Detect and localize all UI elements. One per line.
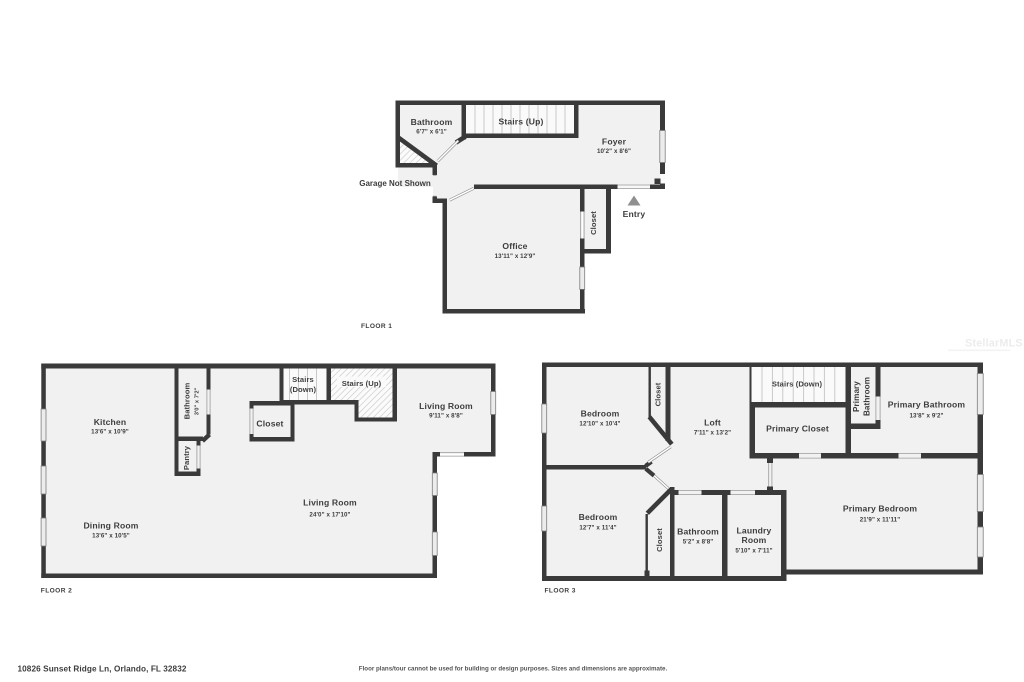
svg-text:Stairs: Stairs bbox=[292, 375, 314, 384]
svg-text:Bedroom: Bedroom bbox=[579, 512, 618, 522]
svg-text:Office: Office bbox=[502, 241, 527, 251]
svg-text:24'0" x 17'10": 24'0" x 17'10" bbox=[309, 512, 350, 519]
svg-text:12'7" x 11'4": 12'7" x 11'4" bbox=[579, 524, 616, 531]
svg-text:Closet: Closet bbox=[655, 528, 664, 552]
svg-text:5'10" x 7'11": 5'10" x 7'11" bbox=[735, 547, 772, 554]
svg-text:Stairs (Down): Stairs (Down) bbox=[772, 379, 823, 388]
svg-text:FLOOR 2: FLOOR 2 bbox=[41, 588, 72, 595]
svg-text:Bedroom: Bedroom bbox=[581, 408, 620, 418]
svg-text:13'6" x 10'5": 13'6" x 10'5" bbox=[92, 533, 130, 540]
svg-text:3'0" x 7'2": 3'0" x 7'2" bbox=[194, 387, 200, 415]
svg-text:Stairs (Up): Stairs (Up) bbox=[498, 116, 543, 126]
svg-text:Closet: Closet bbox=[653, 382, 662, 406]
svg-text:21'9" x 11'11": 21'9" x 11'11" bbox=[860, 517, 901, 524]
svg-text:(Down): (Down) bbox=[290, 385, 317, 394]
svg-text:Primary: Primary bbox=[852, 381, 861, 412]
svg-text:12'10" x 10'4": 12'10" x 10'4" bbox=[579, 420, 620, 427]
svg-text:Living Room: Living Room bbox=[419, 401, 473, 411]
svg-text:Bathroom: Bathroom bbox=[862, 377, 871, 416]
svg-text:Room: Room bbox=[742, 535, 767, 545]
svg-text:Dining Room: Dining Room bbox=[83, 520, 138, 530]
svg-text:13'11" x 12'9": 13'11" x 12'9" bbox=[495, 253, 536, 260]
svg-text:FLOOR 1: FLOOR 1 bbox=[361, 323, 392, 330]
svg-text:Bathroom: Bathroom bbox=[183, 383, 192, 420]
svg-text:Garage Not Shown: Garage Not Shown bbox=[359, 179, 431, 188]
svg-text:Closet: Closet bbox=[256, 419, 283, 429]
svg-text:Primary Bathroom: Primary Bathroom bbox=[888, 399, 966, 409]
svg-text:Laundry: Laundry bbox=[737, 525, 772, 535]
svg-text:Bathroom: Bathroom bbox=[677, 526, 719, 536]
svg-text:Entry: Entry bbox=[623, 209, 646, 219]
svg-text:Floor plans/tour cannot be use: Floor plans/tour cannot be used for buil… bbox=[359, 666, 668, 673]
svg-text:13'8" x 9'2": 13'8" x 9'2" bbox=[909, 413, 943, 420]
svg-text:9'11" x 8'8": 9'11" x 8'8" bbox=[429, 412, 463, 419]
svg-text:Primary Bedroom: Primary Bedroom bbox=[843, 503, 918, 513]
svg-text:7'11" x 13'2": 7'11" x 13'2" bbox=[694, 429, 731, 436]
svg-text:13'6" x 10'9": 13'6" x 10'9" bbox=[91, 429, 129, 436]
svg-text:Stairs (Up): Stairs (Up) bbox=[342, 379, 382, 388]
svg-text:10826 Sunset Ridge Ln, Orlando: 10826 Sunset Ridge Ln, Orlando, FL 32832 bbox=[18, 665, 187, 674]
svg-text:StellarMLS: StellarMLS bbox=[965, 338, 1023, 350]
svg-text:Foyer: Foyer bbox=[602, 136, 627, 146]
svg-text:6'7" x 6'1": 6'7" x 6'1" bbox=[416, 128, 447, 135]
svg-text:Primary Closet: Primary Closet bbox=[766, 423, 829, 433]
svg-text:Kitchen: Kitchen bbox=[94, 417, 127, 427]
svg-text:Closet: Closet bbox=[589, 211, 598, 235]
svg-text:Pantry: Pantry bbox=[182, 445, 191, 470]
svg-text:10'2" x 8'6": 10'2" x 8'6" bbox=[597, 148, 631, 155]
svg-text:5'2" x 8'8": 5'2" x 8'8" bbox=[683, 539, 714, 546]
svg-text:Bathroom: Bathroom bbox=[411, 117, 453, 127]
svg-text:Living Room: Living Room bbox=[303, 498, 357, 508]
svg-text:FLOOR 3: FLOOR 3 bbox=[545, 588, 576, 595]
svg-text:Loft: Loft bbox=[704, 417, 721, 427]
